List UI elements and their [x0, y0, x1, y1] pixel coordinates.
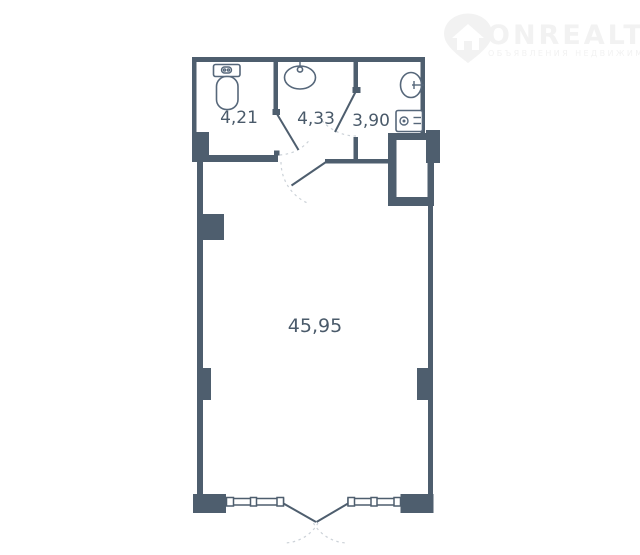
french-door-leaf-left	[284, 504, 317, 523]
window-left-mullion-2	[251, 498, 257, 507]
sink-icon-laundry	[401, 73, 425, 98]
pier-right	[417, 368, 433, 400]
pier-left	[197, 368, 211, 400]
shaft-right-pier	[426, 130, 440, 163]
room-label-living: 45,95	[288, 315, 342, 337]
wall-divider-1-cap	[273, 109, 281, 115]
wall-left-upper	[192, 57, 197, 134]
wall-divider-left-seg	[192, 155, 278, 162]
french-door-leaf-right	[317, 504, 349, 523]
room-label-bath: 4,33	[297, 109, 335, 129]
window-right-mullion-2	[371, 498, 377, 507]
room-label-laundry: 3,90	[352, 111, 390, 131]
wall-right-main	[428, 206, 433, 494]
wall-divider-2-top	[354, 57, 359, 87]
wall-divider-right-seg	[325, 159, 389, 164]
room-label-wc: 4,21	[220, 108, 258, 128]
toilet-icon	[214, 65, 241, 110]
window-right-mullion-3	[394, 498, 401, 507]
door-jamb	[274, 151, 280, 156]
sink-icon-bath	[285, 62, 316, 89]
floor-plan-svg: ONREALT ОБЪЯВЛЕНИЯ НЕДВИЖИМОСТИ	[0, 0, 640, 555]
door-arc-living	[281, 162, 307, 203]
french-door-arc-right	[313, 523, 348, 543]
room-labels: 4,21 4,33 3,90 45,95	[220, 108, 390, 337]
shaft-bottom	[388, 197, 434, 206]
french-door-arc-left	[284, 523, 319, 543]
wall-top	[192, 57, 425, 62]
window-right-mullion-1	[348, 498, 355, 507]
logo-tagline: ОБЪЯВЛЕНИЯ НЕДВИЖИМОСТИ	[488, 49, 640, 58]
shaft-left	[388, 133, 397, 206]
house-door	[464, 41, 472, 50]
wall-left-main	[197, 162, 203, 494]
door-leaf-wc	[277, 114, 299, 150]
door-arc-wc	[277, 141, 308, 155]
logo: ONREALT ОБЪЯВЛЕНИЯ НЕДВИЖИМОСТИ	[444, 14, 640, 64]
logo-brand: ONREALT	[487, 20, 640, 51]
windows	[227, 498, 401, 507]
washing-machine-icon	[396, 111, 423, 132]
window-left-mullion-1	[227, 498, 234, 507]
wall-divider-1	[274, 57, 279, 110]
floor-plan-page: ONREALT ОБЪЯВЛЕНИЯ НЕДВИЖИМОСТИ	[0, 0, 640, 555]
corner-bottom-right	[401, 494, 434, 513]
corner-bottom-left	[193, 494, 226, 513]
window-left-mullion-3	[277, 498, 284, 507]
door-leaf-living	[292, 162, 327, 186]
pillar-left-upper	[197, 214, 224, 240]
